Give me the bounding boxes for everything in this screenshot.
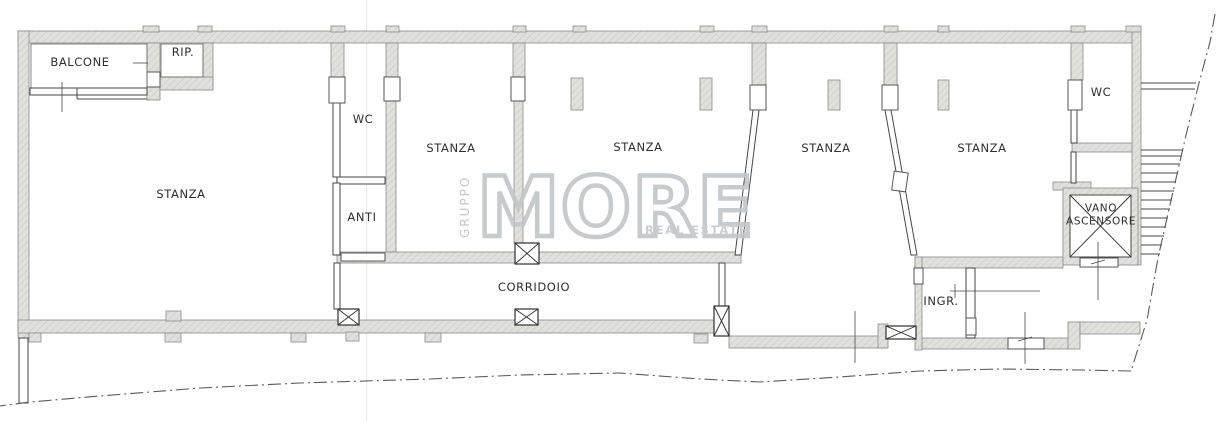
room-label-stanza-2: STANZA	[426, 141, 475, 155]
room-label-stanza-5: STANZA	[957, 141, 1006, 155]
room-label-stanza-3: STANZA	[613, 140, 662, 154]
room-label-ingr: INGR.	[923, 294, 958, 308]
floor-plan: MORE GRUPPO REAL ESTATE BALCONE RIP. STA…	[0, 0, 1221, 421]
floor-plan-drawing: MORE GRUPPO REAL ESTATE	[0, 0, 1221, 421]
watermark-tagline: REAL ESTATE	[645, 223, 749, 237]
room-label-stanza-1: STANZA	[156, 187, 205, 201]
room-label-anti: ANTI	[347, 210, 376, 224]
room-label-corridoio: CORRIDOIO	[498, 280, 570, 294]
room-label-vano-ascensore: VANO ASCENSORE	[1062, 202, 1140, 227]
stairs	[1141, 83, 1196, 254]
watermark-brand: MORE	[477, 159, 755, 256]
room-label-balcone: BALCONE	[50, 55, 109, 69]
watermark-vertical: GRUPPO	[458, 176, 472, 238]
room-label-wc-1: WC	[353, 112, 374, 126]
watermark: MORE GRUPPO REAL ESTATE	[458, 159, 755, 256]
room-label-rip: RIP.	[172, 45, 195, 59]
room-label-wc-2: WC	[1091, 85, 1112, 99]
room-label-stanza-4: STANZA	[801, 141, 850, 155]
